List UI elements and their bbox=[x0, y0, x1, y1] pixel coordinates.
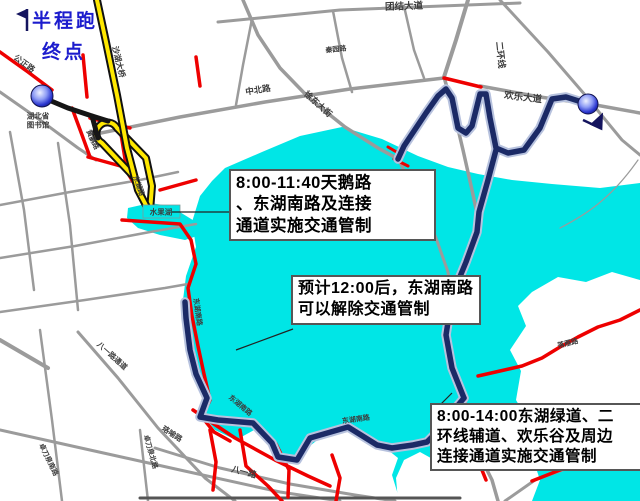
road-label: 二环线 bbox=[494, 41, 506, 69]
road-label: 水果湖 bbox=[150, 208, 173, 216]
finish-marker bbox=[31, 85, 53, 107]
race-title-line1: 半程跑 bbox=[32, 6, 98, 33]
callout-tianerlu-control: 8:00-11:40天鹅路 、东湖南路及连接 通道实施交通管制 bbox=[229, 169, 436, 241]
start-marker bbox=[578, 94, 606, 128]
race-title-line2: 终点 bbox=[42, 37, 98, 64]
race-title: 半程跑 终点 bbox=[16, 6, 98, 64]
finish-flag-icon bbox=[16, 8, 30, 32]
road-label: 图书馆 bbox=[27, 121, 50, 129]
callout-lift-control: 预计12:00后，东湖南路 可以解除交通管制 bbox=[291, 275, 481, 325]
traffic-control-map: 公正路湖北省图书馆沙湖大桥黄鹂路东湖路水果湖中北路徐东大街秦园路团结大道二环线欢… bbox=[0, 0, 640, 501]
road-label: 团结大道 bbox=[385, 2, 423, 13]
road-label: 湖北省 bbox=[27, 112, 50, 120]
callout-greenway-control: 8:00-14:00东湖绿道、二 环线辅道、欢乐谷及周边 连接通道实施交通管制 bbox=[430, 403, 640, 471]
